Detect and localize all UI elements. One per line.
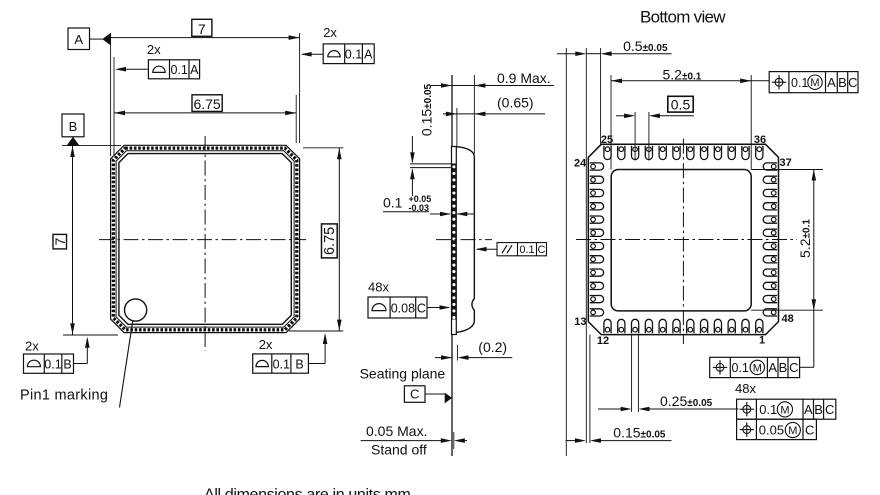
svg-text:0.1: 0.1 — [519, 244, 534, 256]
svg-text:C: C — [805, 423, 814, 438]
svg-text:0.5: 0.5 — [671, 96, 691, 112]
svg-text:M: M — [788, 425, 797, 437]
svg-text:0.08: 0.08 — [391, 302, 415, 316]
svg-text:7: 7 — [198, 21, 206, 37]
svg-text:A: A — [768, 360, 777, 375]
svg-text:0.5±0.05: 0.5±0.05 — [623, 38, 668, 54]
svg-text:Stand off: Stand off — [371, 442, 427, 458]
svg-text:0.1: 0.1 — [732, 361, 749, 375]
svg-text:2x: 2x — [147, 42, 161, 57]
svg-text:6.75: 6.75 — [193, 96, 220, 112]
svg-text:C: C — [789, 360, 798, 375]
svg-text:C: C — [410, 387, 419, 402]
svg-text:48x: 48x — [368, 279, 389, 294]
svg-text:(0.65): (0.65) — [497, 95, 534, 111]
svg-text:B: B — [814, 402, 823, 417]
svg-text:2x: 2x — [259, 337, 273, 352]
svg-text:0.05 Max.: 0.05 Max. — [366, 423, 427, 439]
svg-text:All dimensions are in units mm: All dimensions are in units mm — [204, 487, 410, 495]
svg-text:7: 7 — [52, 237, 68, 245]
svg-text:Pin1 marking: Pin1 marking — [20, 388, 108, 404]
svg-text:0.1: 0.1 — [383, 195, 403, 211]
svg-text:0.1: 0.1 — [759, 402, 777, 417]
svg-text:(0.2): (0.2) — [478, 339, 507, 355]
svg-text:0.25±0.05: 0.25±0.05 — [660, 393, 713, 409]
svg-text:C: C — [848, 75, 857, 90]
svg-text:B: B — [838, 75, 847, 90]
svg-text:Bottom view: Bottom view — [640, 8, 726, 27]
svg-text:A: A — [74, 32, 83, 47]
svg-text:0.1: 0.1 — [345, 48, 362, 62]
svg-text:0.05: 0.05 — [759, 423, 784, 438]
svg-text:48: 48 — [782, 313, 794, 325]
svg-text:12: 12 — [597, 335, 609, 347]
svg-text:Seating plane: Seating plane — [360, 366, 446, 382]
svg-text:A: A — [827, 75, 836, 90]
svg-text:0.1: 0.1 — [273, 357, 290, 371]
svg-text:A: A — [364, 48, 373, 62]
svg-text:B: B — [69, 119, 78, 134]
svg-text:37: 37 — [780, 157, 792, 169]
svg-text:2x: 2x — [323, 25, 337, 40]
svg-text:0.1: 0.1 — [44, 358, 61, 372]
svg-text:36: 36 — [754, 134, 766, 146]
svg-text:M: M — [780, 404, 789, 416]
svg-text:2x: 2x — [25, 339, 39, 354]
svg-text:5.2±0.1: 5.2±0.1 — [663, 67, 702, 83]
svg-text:A: A — [804, 402, 813, 417]
svg-text:1: 1 — [759, 335, 765, 347]
svg-text:0.1: 0.1 — [791, 76, 808, 90]
svg-text:C: C — [825, 402, 834, 417]
svg-text:C: C — [417, 302, 426, 316]
svg-text:B: B — [779, 360, 788, 375]
svg-text:5.2±0.1: 5.2±0.1 — [797, 219, 813, 258]
svg-text:24: 24 — [574, 158, 587, 170]
svg-text:B: B — [295, 357, 303, 371]
svg-text:M: M — [753, 362, 762, 374]
svg-text:B: B — [63, 358, 71, 372]
svg-text:0.1: 0.1 — [171, 63, 188, 77]
svg-text:0.9 Max.: 0.9 Max. — [497, 70, 551, 86]
svg-text:6.75: 6.75 — [322, 227, 338, 255]
svg-text:13: 13 — [574, 316, 586, 328]
svg-text:0.15±0.05: 0.15±0.05 — [613, 425, 666, 441]
svg-text:0.15±0.05: 0.15±0.05 — [419, 83, 435, 136]
svg-text:C: C — [538, 244, 546, 256]
svg-text:M: M — [810, 77, 819, 89]
svg-text:A: A — [190, 63, 199, 77]
svg-text:48x: 48x — [735, 381, 756, 396]
